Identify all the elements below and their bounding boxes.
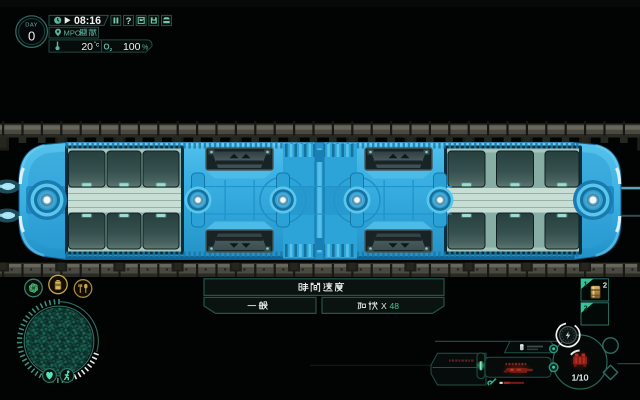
svg-text:2: 2 xyxy=(584,306,588,313)
svg-text:1/10: 1/10 xyxy=(572,372,589,382)
svg-text:2: 2 xyxy=(603,281,607,290)
svg-text:DAY: DAY xyxy=(25,22,38,28)
svg-text:100: 100 xyxy=(123,41,141,53)
svg-text:X: X xyxy=(381,301,387,311)
svg-text:20: 20 xyxy=(81,41,93,53)
svg-text:%: % xyxy=(142,44,148,51)
svg-text:?: ? xyxy=(126,16,132,27)
svg-text:0: 0 xyxy=(28,29,35,44)
svg-text:2: 2 xyxy=(110,47,113,53)
svg-text:1: 1 xyxy=(584,282,588,289)
svg-text:08:16: 08:16 xyxy=(74,15,101,27)
svg-text:48: 48 xyxy=(390,301,400,311)
svg-text:MPO: MPO xyxy=(64,29,81,38)
svg-text:˚c: ˚c xyxy=(94,42,99,49)
